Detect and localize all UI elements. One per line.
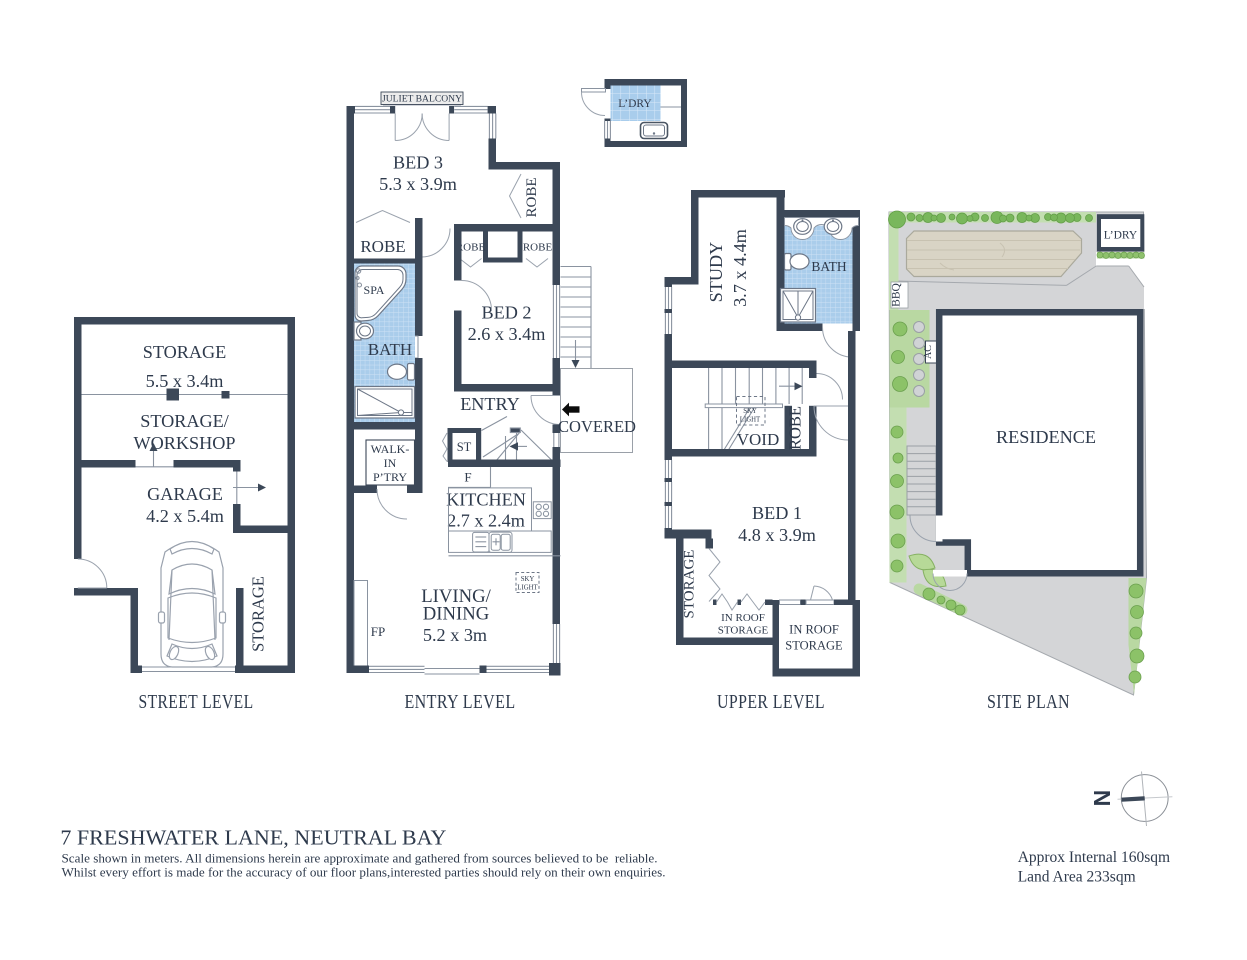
svg-text:3.7 x 4.4m: 3.7 x 4.4m	[730, 229, 750, 307]
svg-text:STORAGE/: STORAGE/	[140, 411, 230, 431]
svg-text:JULIET BALCONY: JULIET BALCONY	[382, 94, 462, 105]
svg-text:SPA: SPA	[364, 283, 385, 297]
svg-text:2.7 x 2.4m: 2.7 x 2.4m	[447, 511, 525, 531]
svg-text:BED 3: BED 3	[393, 153, 443, 173]
svg-text:SITE PLAN: SITE PLAN	[987, 691, 1070, 713]
svg-text:BATH: BATH	[368, 340, 412, 359]
svg-text:STORAGE: STORAGE	[785, 639, 843, 653]
svg-text:ROBE: ROBE	[523, 242, 553, 254]
svg-text:5.3 x 3.9m: 5.3 x 3.9m	[379, 174, 457, 194]
svg-text:F: F	[464, 470, 471, 485]
svg-text:BED 1: BED 1	[752, 503, 802, 523]
svg-text:STORAGE: STORAGE	[682, 550, 698, 619]
svg-text:ROBE: ROBE	[524, 177, 540, 217]
svg-text:Approx Internal 160sqm: Approx Internal 160sqm	[1018, 849, 1170, 866]
svg-text:ENTRY: ENTRY	[460, 394, 520, 414]
svg-text:L’DRY: L’DRY	[618, 98, 652, 110]
svg-text:KITCHEN: KITCHEN	[446, 490, 526, 510]
svg-text:7 FRESHWATER LANE, NEUTRAL BAY: 7 FRESHWATER LANE, NEUTRAL BAY	[60, 826, 446, 850]
svg-text:SKY: SKY	[521, 576, 535, 583]
svg-text:STORAGE: STORAGE	[249, 576, 268, 652]
svg-text:VOID: VOID	[737, 430, 780, 449]
svg-text:IN ROOF: IN ROOF	[721, 612, 765, 624]
svg-text:IN: IN	[384, 456, 397, 470]
svg-text:ROBE: ROBE	[360, 237, 405, 256]
svg-text:STREET LEVEL: STREET LEVEL	[139, 691, 254, 713]
svg-text:L’DRY: L’DRY	[1104, 230, 1138, 242]
svg-text:Whilst every effort is made fo: Whilst every effort is made for the accu…	[62, 865, 666, 879]
svg-text:GARAGE: GARAGE	[147, 484, 223, 504]
svg-text:5.2 x 3m: 5.2 x 3m	[423, 625, 487, 645]
svg-text:COVERED: COVERED	[558, 417, 636, 436]
svg-text:SKY: SKY	[743, 408, 757, 415]
svg-text:ROBE: ROBE	[786, 406, 805, 450]
svg-text:FP: FP	[371, 624, 385, 639]
svg-text:2.6 x 3.4m: 2.6 x 3.4m	[468, 324, 546, 344]
svg-text:ST: ST	[457, 440, 472, 454]
svg-text:WALK-: WALK-	[371, 442, 410, 456]
svg-text:BED 2: BED 2	[481, 303, 531, 323]
svg-text:IN ROOF: IN ROOF	[789, 623, 839, 637]
svg-text:N: N	[1089, 790, 1115, 807]
svg-text:RESIDENCE: RESIDENCE	[996, 427, 1096, 447]
svg-text:WORKSHOP: WORKSHOP	[133, 433, 235, 453]
svg-text:BBQ: BBQ	[891, 282, 903, 306]
svg-text:LIGHT: LIGHT	[740, 417, 761, 424]
svg-text:P’TRY: P’TRY	[373, 470, 407, 484]
svg-text:5.5 x 3.4m: 5.5 x 3.4m	[146, 371, 224, 391]
svg-text:STORAGE: STORAGE	[143, 342, 227, 362]
svg-text:ENTRY LEVEL: ENTRY LEVEL	[405, 691, 516, 713]
svg-text:STORAGE: STORAGE	[718, 625, 769, 637]
svg-text:LIGHT: LIGHT	[517, 585, 538, 592]
svg-text:DINING: DINING	[423, 604, 489, 625]
svg-text:BATH: BATH	[811, 259, 847, 274]
svg-text:4.8 x 3.9m: 4.8 x 3.9m	[738, 525, 816, 545]
svg-text:AC: AC	[923, 345, 934, 359]
svg-text:Land Area 233sqm: Land Area 233sqm	[1018, 869, 1136, 886]
svg-text:STUDY: STUDY	[706, 242, 726, 303]
svg-text:4.2 x 5.4m: 4.2 x 5.4m	[146, 506, 224, 526]
svg-text:UPPER LEVEL: UPPER LEVEL	[717, 691, 825, 713]
svg-text:Scale shown in meters. All dim: Scale shown in meters. All dimensions he…	[62, 852, 658, 866]
